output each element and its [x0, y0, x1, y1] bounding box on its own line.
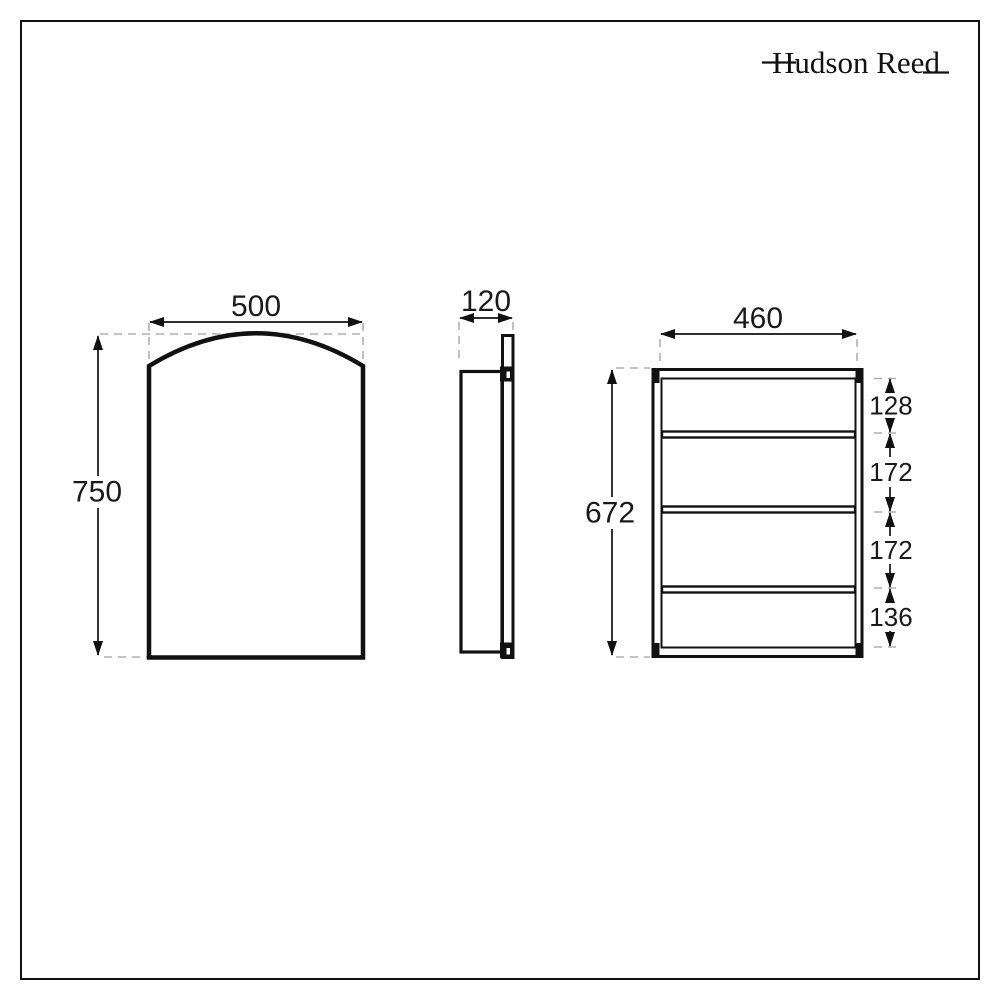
dim-front-width: 500	[150, 290, 362, 323]
technical-drawing: Hudson Reed 500 750	[0, 0, 1000, 1000]
brand-name: Hudson Reed	[772, 45, 940, 80]
dim-internal-width: 460	[661, 302, 856, 335]
corner-block	[856, 643, 863, 657]
dim-internal-width-label: 460	[733, 302, 783, 335]
dim-side-depth: 120	[460, 285, 512, 318]
shelf	[662, 507, 855, 513]
cabinet-body-profile	[461, 372, 502, 653]
dim-compartment-4: 136	[869, 589, 912, 646]
mirror-door-profile	[503, 336, 514, 658]
hinge-bottom-notch	[507, 648, 511, 655]
front-view: 500 750	[72, 290, 363, 658]
hinge-top-notch	[507, 372, 511, 379]
dim-compartment-4-label: 136	[869, 602, 912, 632]
dim-front-height-label: 750	[72, 476, 122, 509]
mirror-outline	[149, 333, 363, 657]
dim-compartment-2-label: 172	[869, 457, 912, 487]
shelf	[662, 432, 855, 438]
dim-front-width-label: 500	[231, 290, 281, 323]
internal-view: 460 672 128 172 172	[585, 302, 913, 657]
corner-block	[653, 369, 660, 383]
dim-compartment-1: 128	[869, 379, 912, 432]
dim-compartment-3-label: 172	[869, 535, 912, 565]
dim-internal-height: 672	[585, 370, 635, 655]
dim-compartment-3: 172	[869, 513, 912, 587]
dim-side-depth-label: 120	[461, 285, 511, 318]
corner-block	[856, 369, 863, 383]
dim-compartment-1-label: 128	[869, 391, 912, 421]
dim-front-height: 750	[72, 336, 122, 655]
shelf	[662, 587, 855, 593]
corner-block	[653, 643, 660, 657]
brand-logo: Hudson Reed	[762, 45, 949, 80]
side-view: 120	[459, 285, 514, 658]
drawing-page: Hudson Reed 500 750	[0, 0, 1000, 1000]
dim-compartment-2: 172	[869, 434, 912, 511]
dim-internal-height-label: 672	[585, 497, 635, 530]
